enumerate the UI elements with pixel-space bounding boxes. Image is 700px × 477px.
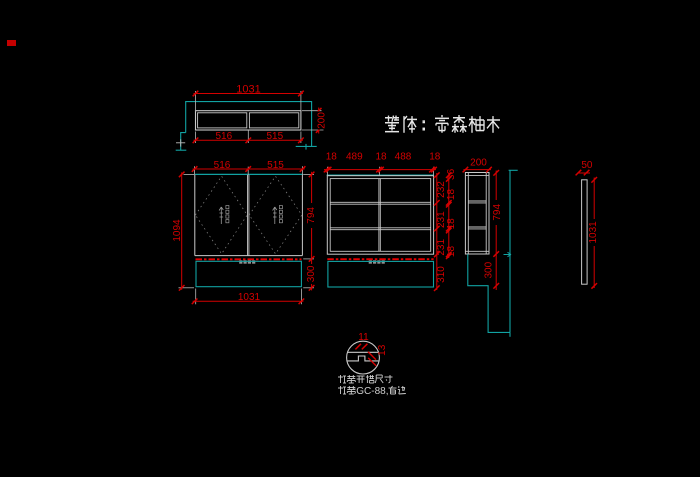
svg-text:18: 18 — [375, 151, 387, 162]
svg-text:1031: 1031 — [238, 292, 261, 303]
svg-text:489: 489 — [346, 151, 363, 162]
svg-text:18: 18 — [446, 218, 457, 230]
svg-text:200: 200 — [317, 112, 328, 129]
svg-text::GC-88,: :GC-88, — [354, 386, 389, 397]
svg-text:300: 300 — [306, 265, 317, 282]
svg-text:18: 18 — [429, 151, 441, 162]
svg-text:36: 36 — [446, 168, 457, 180]
svg-text:310: 310 — [436, 266, 447, 283]
svg-text:794: 794 — [306, 207, 317, 224]
svg-text:1031: 1031 — [588, 221, 599, 244]
svg-text:13: 13 — [377, 344, 388, 356]
svg-text:300: 300 — [483, 261, 494, 278]
svg-text:794: 794 — [492, 204, 503, 221]
svg-text:200: 200 — [470, 158, 487, 169]
svg-text:516: 516 — [214, 160, 231, 171]
svg-text:1031: 1031 — [236, 83, 260, 95]
svg-text:18: 18 — [446, 246, 457, 258]
svg-text:11: 11 — [358, 332, 369, 343]
svg-text:1094: 1094 — [172, 219, 183, 242]
svg-text:18: 18 — [326, 151, 338, 162]
svg-text:488: 488 — [395, 151, 412, 162]
svg-text:515: 515 — [266, 131, 283, 142]
svg-text:18: 18 — [446, 189, 457, 201]
svg-text:516: 516 — [215, 131, 232, 142]
svg-text:50: 50 — [581, 160, 593, 171]
svg-text:515: 515 — [267, 160, 284, 171]
